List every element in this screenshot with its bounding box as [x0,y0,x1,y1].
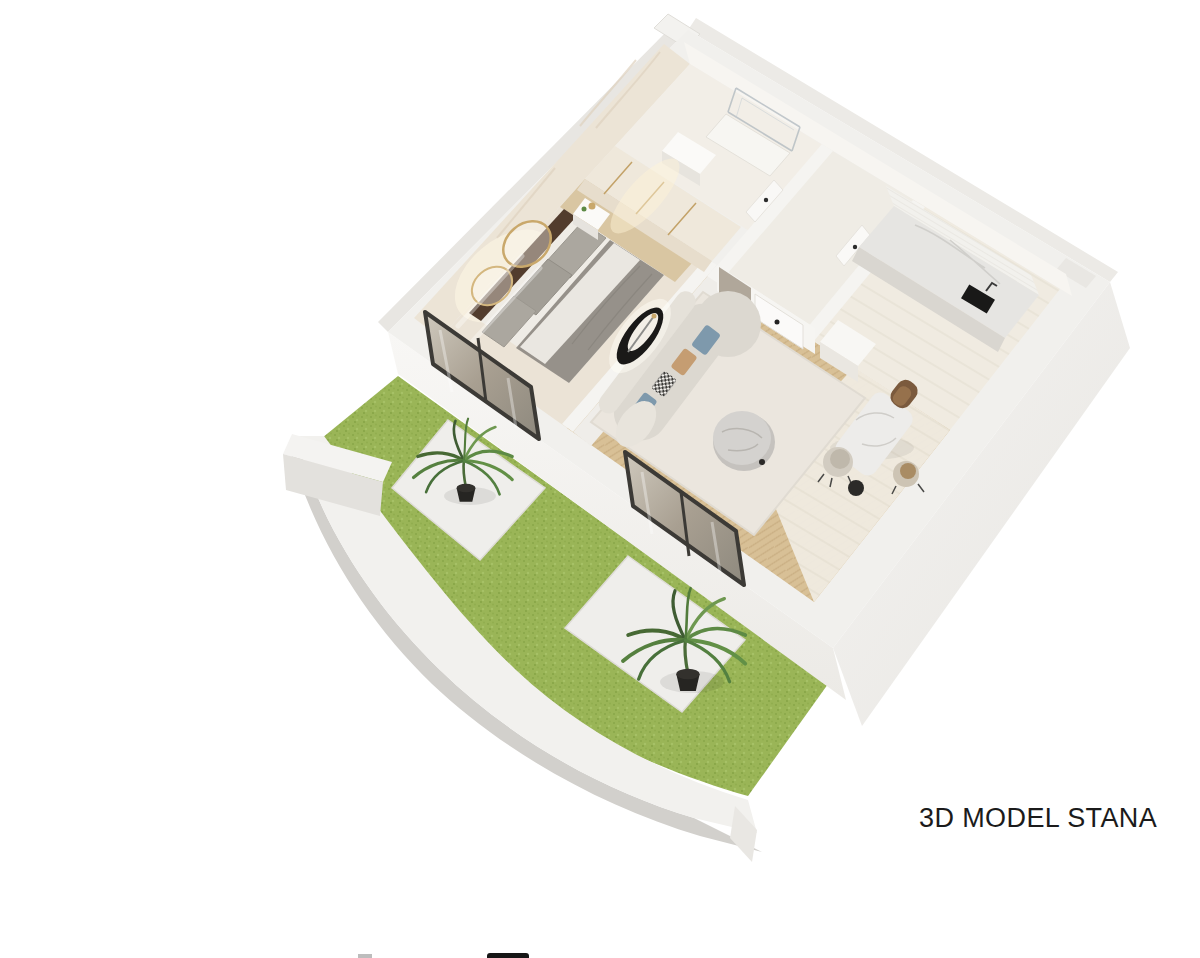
table-top-marble [713,411,771,465]
table-lamp [589,203,596,210]
clipped-logo-mark [487,953,529,958]
door-handle [764,198,768,202]
clipped-logo-mark-faint [358,954,372,958]
render-caption: 3D MODEL STANA [919,803,1129,834]
small-plant [582,207,587,212]
door-handle [853,245,857,249]
door-handle [775,320,780,325]
black-stool [848,480,864,496]
table-foot [759,459,765,465]
page: 3D MODEL STANA [0,0,1200,958]
sconce-detail [652,314,657,319]
